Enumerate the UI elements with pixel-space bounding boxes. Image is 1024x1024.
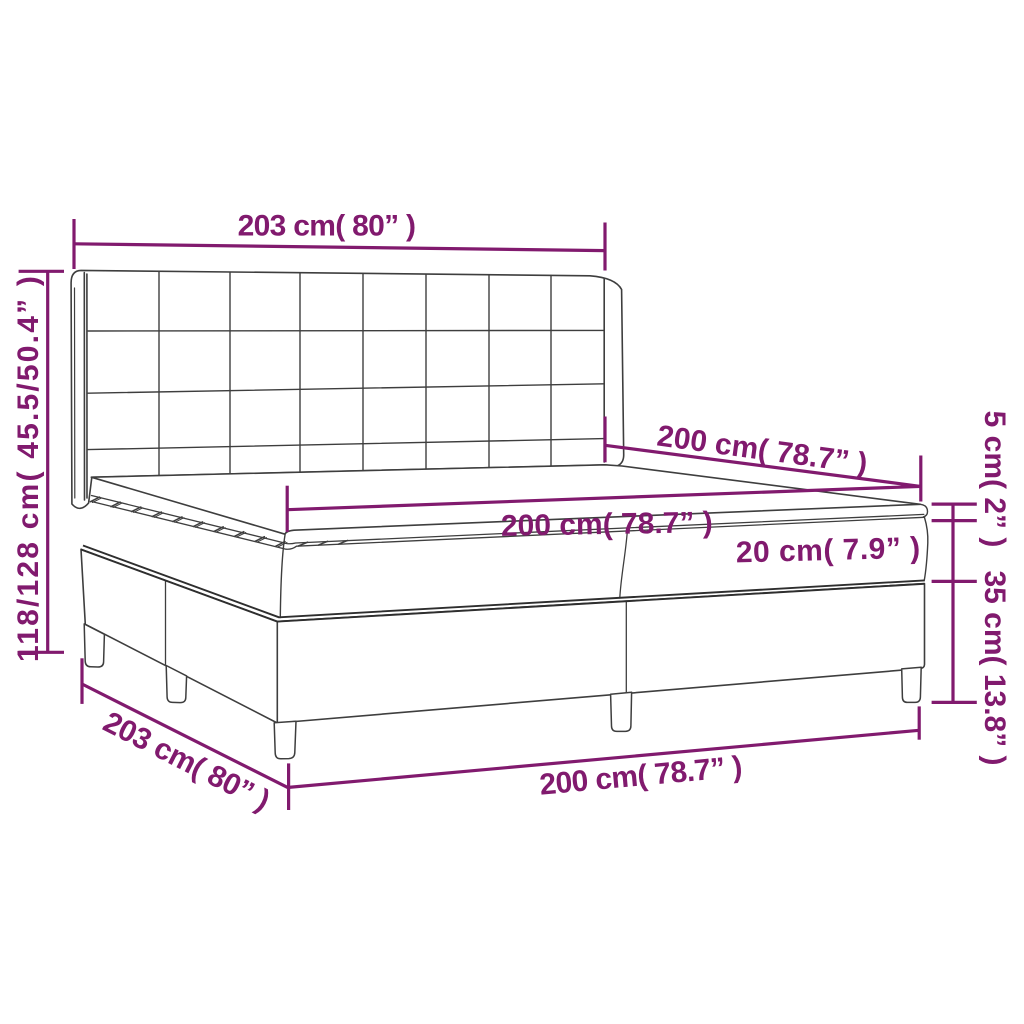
- svg-text:203 cm( 80” ): 203 cm( 80” ): [238, 210, 416, 243]
- svg-text:118/128 cm( 45.5/50.4” ): 118/128 cm( 45.5/50.4” ): [12, 274, 45, 662]
- svg-text:20 cm( 7.9” ): 20 cm( 7.9” ): [735, 532, 921, 570]
- svg-text:35 cm( 13.8” ): 35 cm( 13.8” ): [978, 570, 1011, 765]
- svg-text:200 cm( 78.7” ): 200 cm( 78.7” ): [501, 506, 713, 543]
- svg-text:5 cm( 2” ): 5 cm( 2” ): [978, 411, 1011, 548]
